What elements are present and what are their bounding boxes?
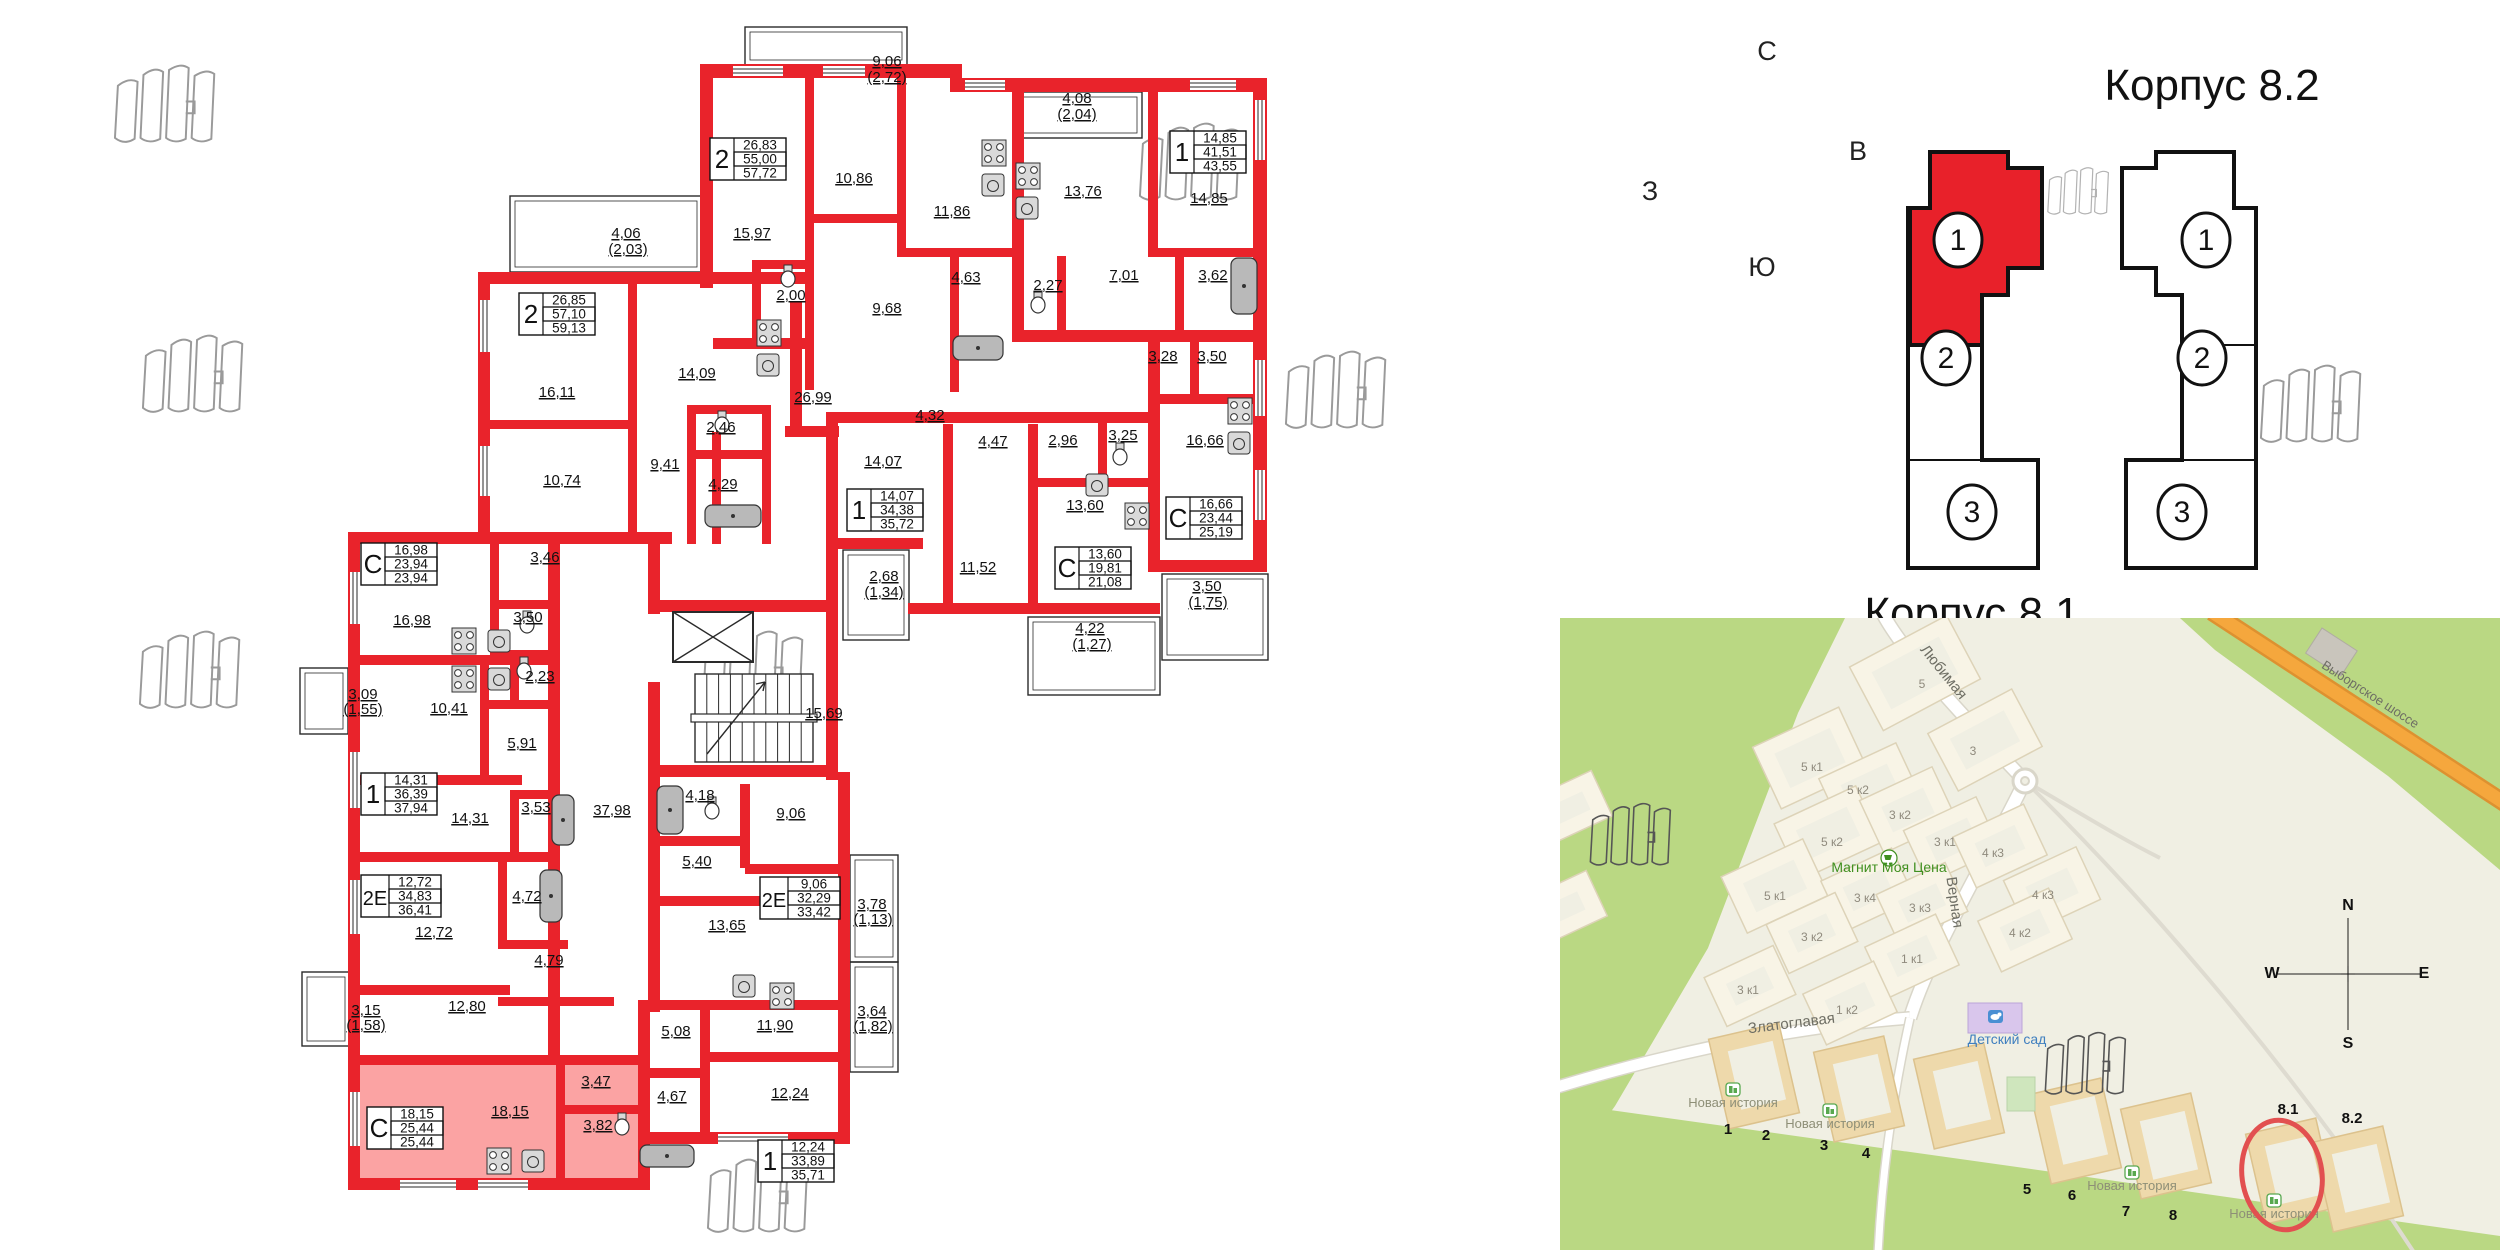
map-house-number: 7 bbox=[2122, 1203, 2130, 1220]
map-building-label: 3 к3 bbox=[1909, 901, 1931, 915]
map-building-label: 3 к1 bbox=[1737, 983, 1759, 997]
map-house-number: 8 bbox=[2169, 1207, 2177, 1224]
map-building-label: 4 к3 bbox=[2032, 888, 2054, 902]
map-house-number: 5 bbox=[2023, 1181, 2031, 1198]
map-house-number: 4 bbox=[1862, 1145, 1871, 1162]
map-building-label: 4 к3 bbox=[1982, 846, 2004, 860]
magnit-store-label: Магнит Моя Цена bbox=[1831, 859, 1947, 875]
novaya-istoriya-label: Новая история bbox=[1688, 1095, 1778, 1110]
kindergarten-label: Детский сад bbox=[1968, 1031, 2047, 1047]
kindergarten-icon bbox=[1988, 1010, 2003, 1023]
map-house-number: 1 bbox=[1724, 1121, 1732, 1138]
rose-west-label: W bbox=[2264, 965, 2280, 982]
sports-pitch bbox=[2007, 1077, 2035, 1111]
map-house-number: 8.2 bbox=[2342, 1110, 2363, 1127]
map-house-number: 2 bbox=[1762, 1127, 1770, 1144]
map-building-label: 5 к1 bbox=[1801, 760, 1823, 774]
rose-east-label: E bbox=[2419, 965, 2430, 982]
rose-north-label: N bbox=[2342, 897, 2354, 914]
map-building-label: 3 к2 bbox=[1889, 808, 1911, 822]
novaya-istoriya-label: Новая история bbox=[1785, 1116, 1875, 1131]
map-building-label: 1 к1 bbox=[1901, 952, 1923, 966]
map-house-number: 6 bbox=[2068, 1187, 2076, 1204]
map-building-label: 3 к2 bbox=[1801, 930, 1823, 944]
map-building-label: 3 к4 bbox=[1854, 891, 1876, 905]
map-building-label: 5 bbox=[1919, 677, 1926, 691]
map-building-label: 4 к2 bbox=[2009, 926, 2031, 940]
map-house-number: 3 bbox=[1820, 1137, 1828, 1154]
novaya-istoriya-label: Новая история bbox=[2087, 1178, 2177, 1193]
map-building-label: 1 к2 bbox=[1836, 1003, 1858, 1017]
map-building-label: 3 bbox=[1970, 744, 1977, 758]
rose-south-label: S bbox=[2343, 1035, 2354, 1052]
map-house-number: 8.1 bbox=[2278, 1101, 2299, 1118]
map-building-label: 5 к2 bbox=[1821, 835, 1843, 849]
map-building-label: 5 к2 bbox=[1847, 783, 1869, 797]
map-building-label: 3 к1 bbox=[1934, 835, 1956, 849]
novaya-istoriya-label: Новая история bbox=[2229, 1206, 2319, 1221]
map-building-label: 5 к1 bbox=[1764, 889, 1786, 903]
location-map[interactable]: Новая историяНовая историяНовая историяН… bbox=[0, 0, 2500, 1250]
